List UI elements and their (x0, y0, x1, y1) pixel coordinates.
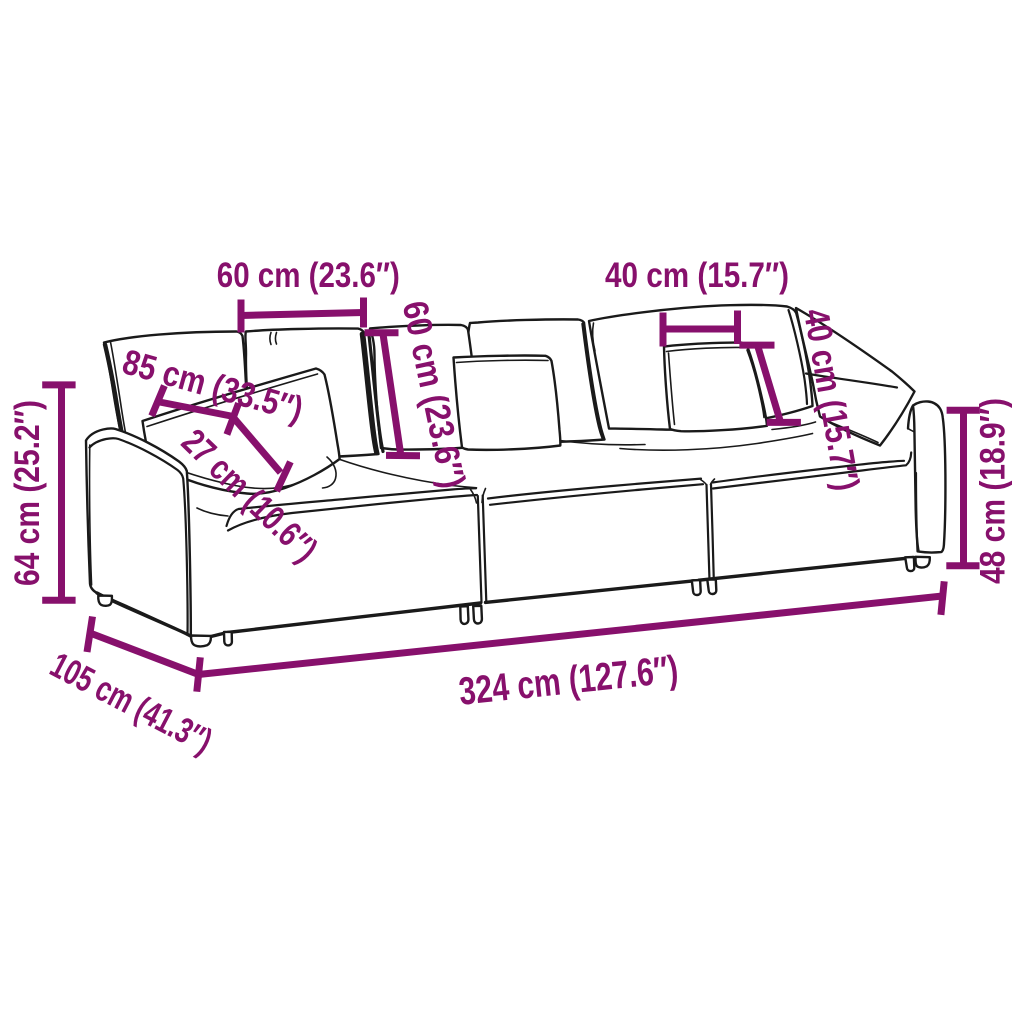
svg-text:40 cm (15.7″): 40 cm (15.7″) (605, 255, 789, 295)
svg-text:60 cm (23.6″): 60 cm (23.6″) (217, 255, 400, 295)
svg-text:48 cm (18.9″): 48 cm (18.9″) (973, 398, 1013, 584)
svg-text:64 cm (25.2″): 64 cm (25.2″) (7, 400, 47, 586)
